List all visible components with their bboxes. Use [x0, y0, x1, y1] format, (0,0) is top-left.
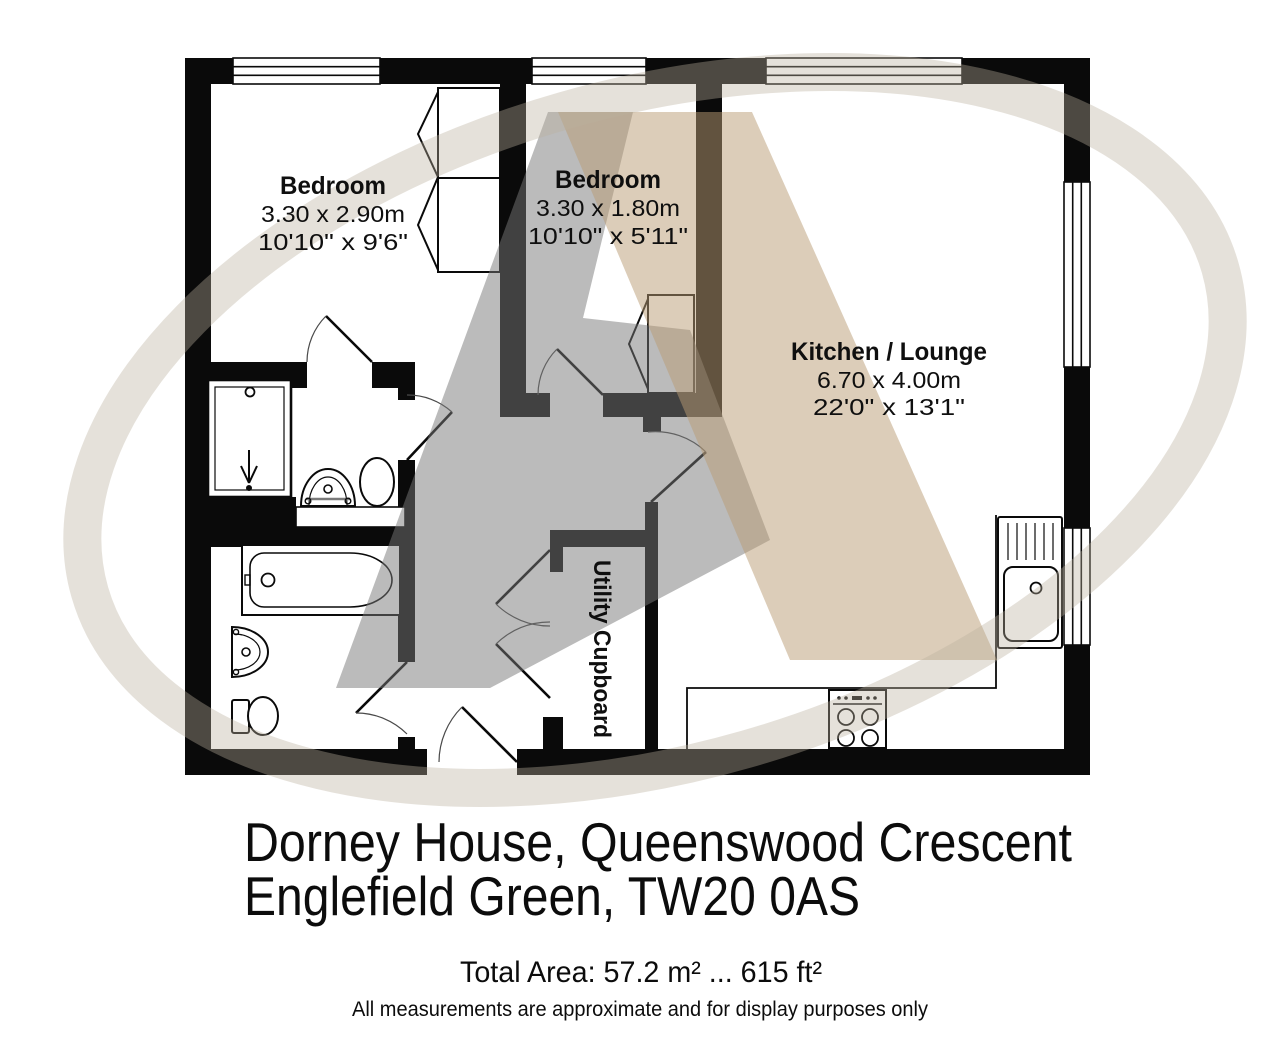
- floorplan-canvas: Bedroom 3.30 x 2.90m 10'10" x 9'6" Bedro…: [0, 0, 1269, 1064]
- bedroom2-metric: 3.30 x 1.80m: [536, 195, 680, 221]
- shower-icon: [208, 380, 291, 497]
- disclaimer: All measurements are approximate and for…: [352, 998, 928, 1021]
- total-area: Total Area: 57.2 m² ... 615 ft²: [460, 956, 822, 989]
- footer: Dorney House, Queenswood Crescent Englef…: [244, 811, 1072, 1021]
- vanity-counter: [296, 507, 405, 527]
- sink-icon: [232, 627, 268, 677]
- utility-cupboard-label: Utility Cupboard: [588, 560, 615, 738]
- bedroom1-metric: 3.30 x 2.90m: [261, 201, 405, 227]
- address-line1: Dorney House, Queenswood Crescent: [244, 811, 1072, 873]
- bedroom2-name: Bedroom: [555, 166, 661, 194]
- door-icon: [307, 316, 372, 362]
- sink-icon: [301, 469, 355, 506]
- kitchen-lounge-name: Kitchen / Lounge: [791, 338, 987, 366]
- address-line2: Englefield Green, TW20 0AS: [244, 865, 860, 927]
- bedroom1-imperial: 10'10" x 9'6": [258, 229, 408, 255]
- floorplan-page: Bedroom 3.30 x 2.90m 10'10" x 9'6" Bedro…: [0, 0, 1269, 1064]
- toilet-icon: [360, 458, 394, 506]
- window-icon: [233, 58, 380, 84]
- bedroom1-name: Bedroom: [280, 172, 386, 200]
- bedroom2-imperial: 10'10" x 5'11": [528, 223, 688, 249]
- kitchen-lounge-metric: 6.70 x 4.00m: [817, 367, 961, 393]
- window-icon: [1064, 182, 1090, 367]
- kitchen-lounge-imperial: 22'0" x 13'1": [813, 394, 965, 420]
